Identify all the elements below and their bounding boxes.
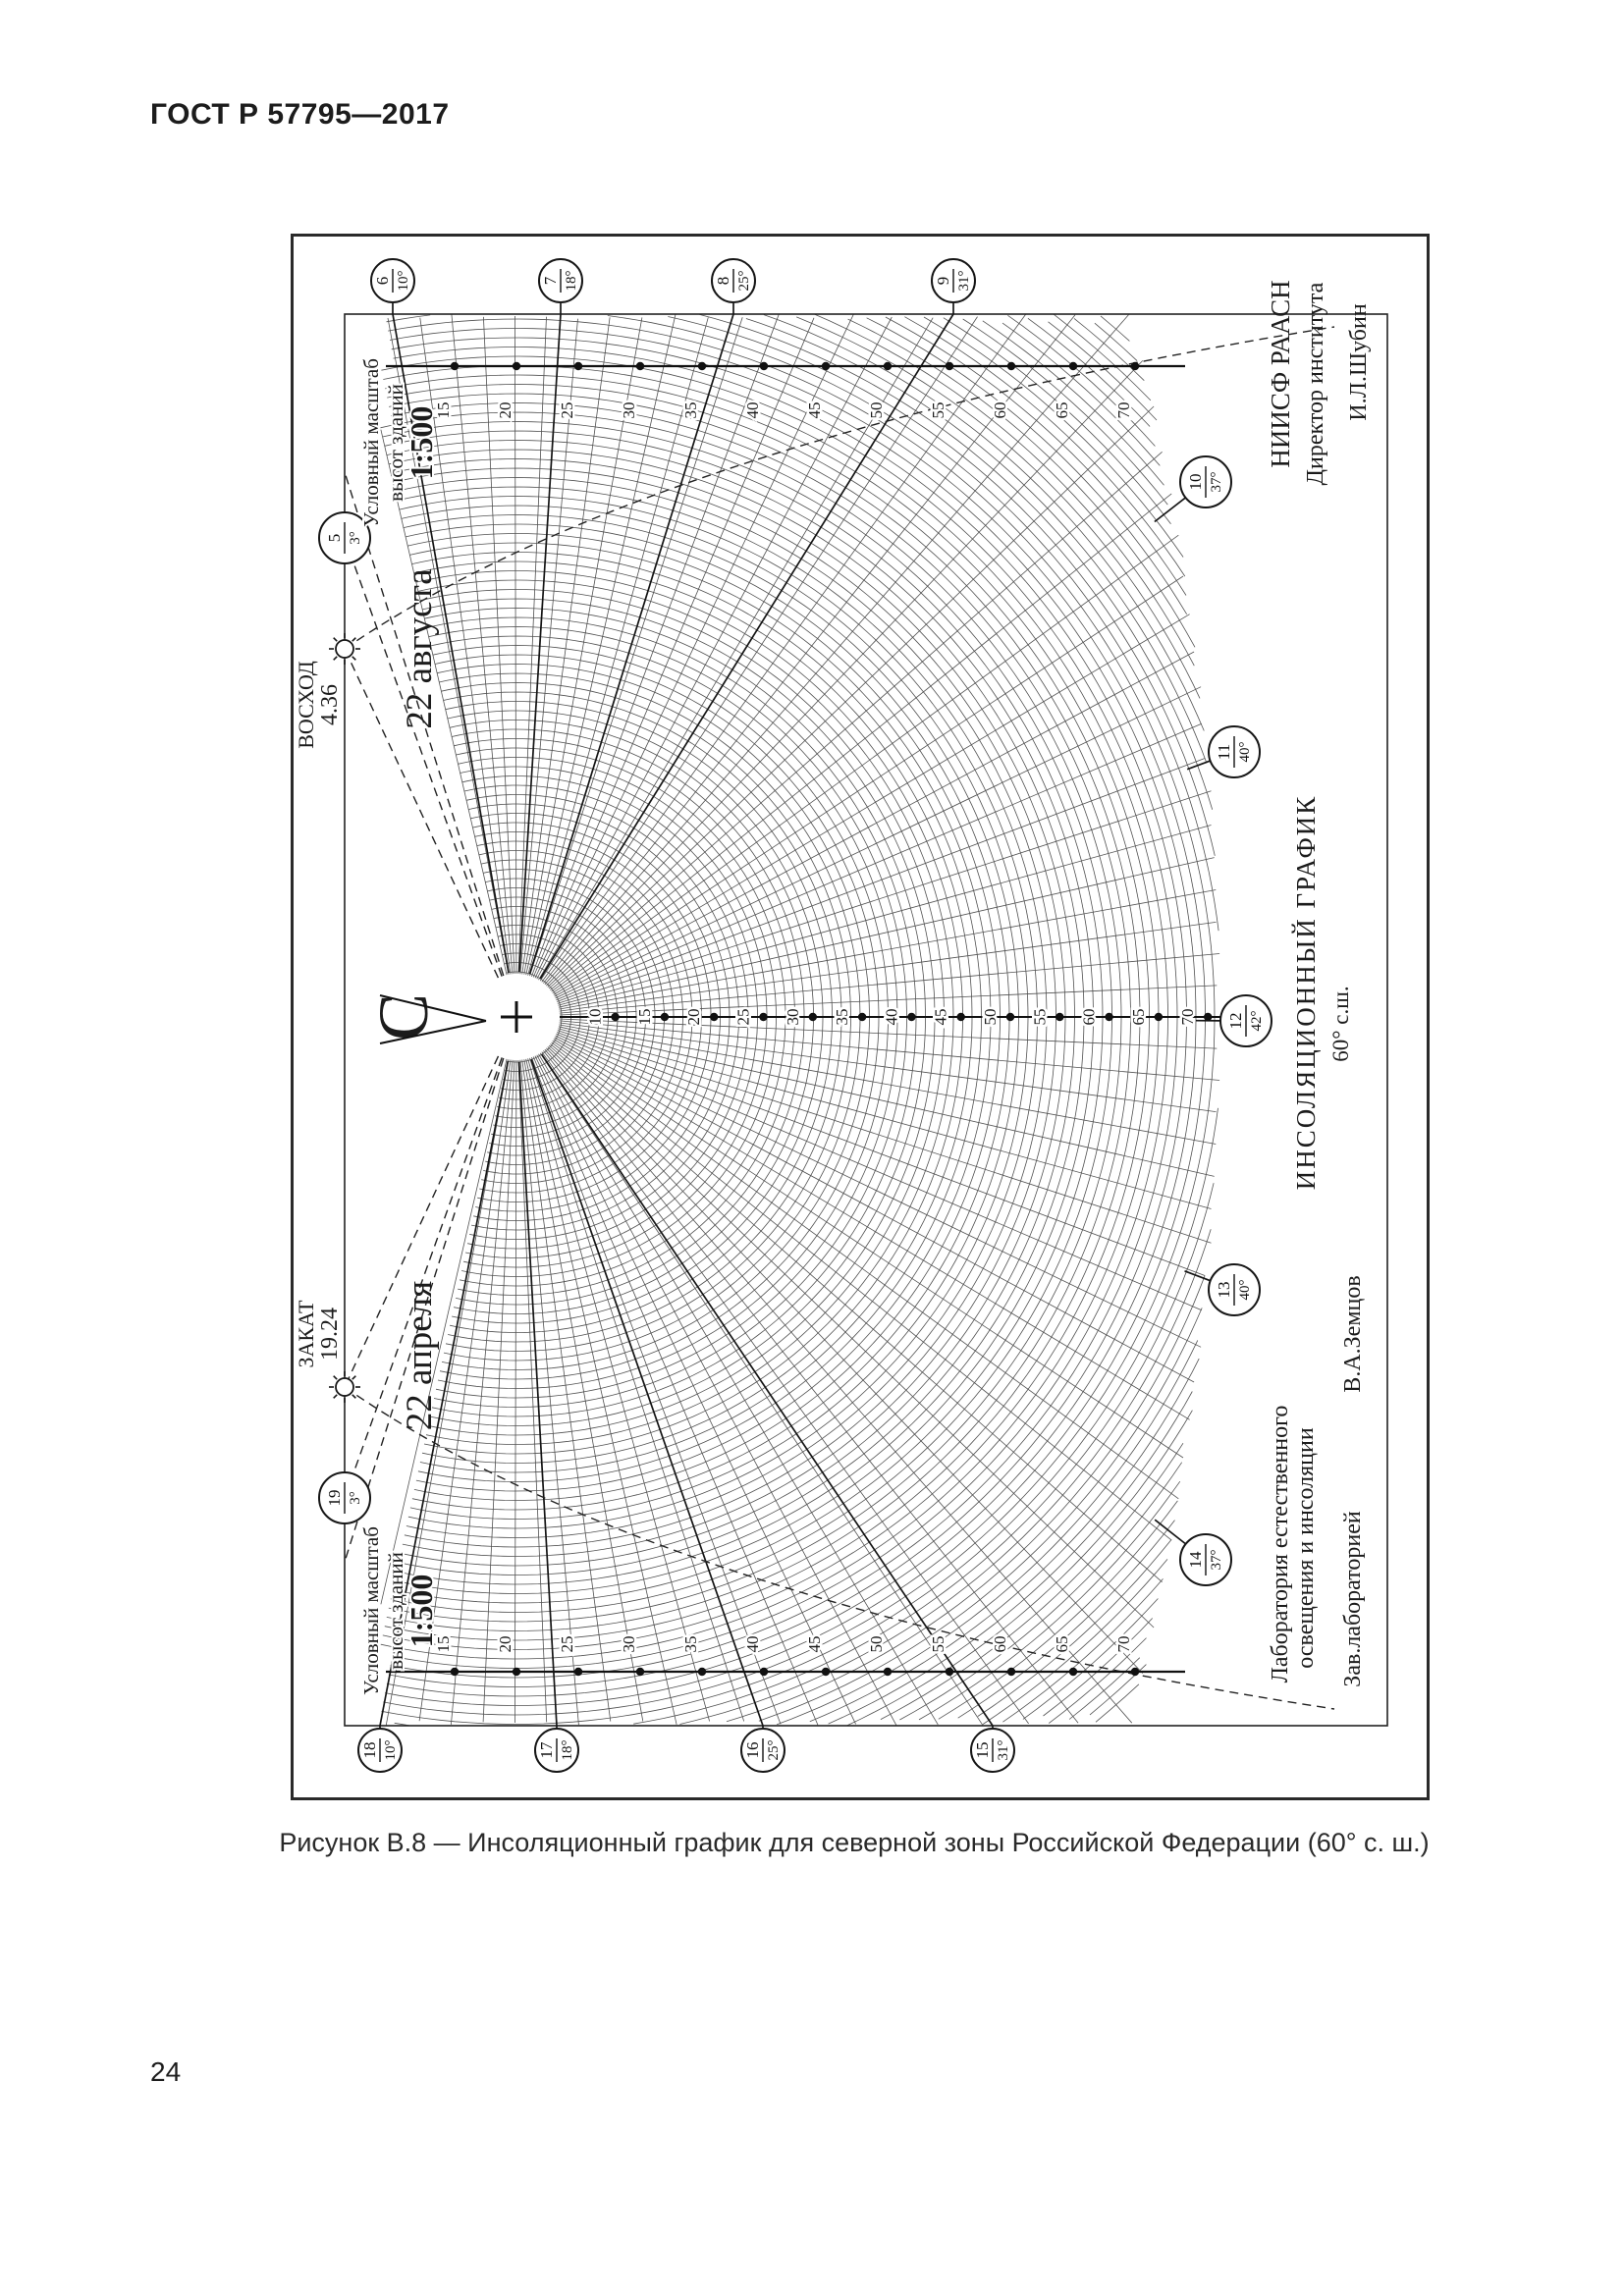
lab-head-name: В.А.Земцов — [1340, 1275, 1366, 1392]
north-symbol: С — [364, 993, 486, 1043]
svg-text:40: 40 — [743, 1636, 762, 1653]
chart-latitude: 60° с.ш. — [1328, 986, 1353, 1061]
sunset-time: 19.24 — [317, 1308, 343, 1361]
chart-title: ИНСОЛЯЦИОННЫЙ ГРАФИК — [1291, 795, 1321, 1191]
sunset-sun-icon — [329, 1371, 360, 1403]
scale-note-top-line3: 1:500 — [404, 406, 439, 480]
svg-text:45: 45 — [932, 1009, 950, 1026]
svg-text:65: 65 — [1129, 1009, 1148, 1026]
svg-text:6: 6 — [373, 277, 392, 286]
svg-text:50: 50 — [867, 402, 886, 419]
svg-text:25°: 25° — [736, 271, 752, 292]
svg-text:50: 50 — [981, 1009, 1000, 1026]
svg-text:30: 30 — [620, 1636, 638, 1653]
svg-text:40°: 40° — [1237, 742, 1253, 763]
svg-text:37°: 37° — [1209, 1550, 1224, 1571]
sunrise-label: ВОСХОД — [294, 661, 318, 749]
svg-text:37°: 37° — [1209, 472, 1224, 493]
lab-name-line1: Лаборатория естественного — [1268, 1406, 1293, 1683]
svg-text:30: 30 — [620, 402, 638, 419]
svg-text:13: 13 — [1215, 1282, 1233, 1299]
svg-text:11: 11 — [1215, 744, 1233, 760]
svg-text:20: 20 — [496, 1636, 514, 1653]
height-ruler-top: 152025303540455055606570 — [386, 362, 1185, 419]
svg-text:8: 8 — [714, 277, 732, 286]
svg-text:9: 9 — [934, 277, 952, 286]
svg-text:40: 40 — [882, 1009, 900, 1026]
svg-text:60: 60 — [991, 402, 1009, 419]
svg-text:31°: 31° — [956, 271, 972, 292]
scale-note-bottom-line3: 1:500 — [404, 1575, 439, 1648]
svg-text:10: 10 — [586, 1009, 605, 1026]
figure-caption: Рисунок В.8 — Инсоляционный график для с… — [245, 1828, 1463, 1858]
standard-number-header: ГОСТ Р 57795—2017 — [150, 98, 450, 132]
svg-text:14: 14 — [1186, 1551, 1205, 1569]
lab-name-line2: освещения и инсоляции — [1293, 1427, 1319, 1669]
svg-text:65: 65 — [1053, 402, 1071, 419]
svg-text:17: 17 — [537, 1741, 556, 1759]
svg-text:18: 18 — [360, 1742, 379, 1759]
svg-text:25: 25 — [558, 1636, 576, 1653]
svg-text:60: 60 — [991, 1636, 1009, 1653]
svg-text:40°: 40° — [1237, 1280, 1253, 1301]
svg-text:35: 35 — [681, 402, 700, 419]
lab-head-title: Зав.лабораторией — [1340, 1511, 1366, 1687]
svg-text:10°: 10° — [396, 271, 411, 292]
scale-note-bottom-line1: Условный масштаб — [359, 1526, 383, 1695]
svg-text:70: 70 — [1114, 402, 1133, 419]
date-label-april: 22 апреля — [400, 1281, 440, 1430]
svg-text:70: 70 — [1178, 1009, 1197, 1026]
svg-text:30: 30 — [784, 1009, 802, 1026]
svg-text:10: 10 — [1186, 474, 1205, 491]
sunrise-time: 4.36 — [317, 684, 343, 725]
page-number: 24 — [150, 2056, 181, 2088]
svg-text:3°: 3° — [348, 1491, 363, 1505]
svg-text:18°: 18° — [564, 271, 579, 292]
svg-text:25: 25 — [734, 1009, 753, 1026]
org-director-name: И.Л.Шубин — [1346, 303, 1372, 421]
svg-text:45: 45 — [805, 1636, 824, 1653]
svg-text:35: 35 — [833, 1009, 851, 1026]
svg-text:7: 7 — [541, 276, 560, 285]
svg-text:25°: 25° — [766, 1740, 782, 1761]
svg-text:20: 20 — [684, 1009, 703, 1026]
svg-text:15: 15 — [635, 1009, 654, 1026]
svg-text:42°: 42° — [1249, 1011, 1265, 1032]
svg-text:16: 16 — [743, 1742, 762, 1759]
svg-text:5: 5 — [325, 534, 344, 543]
svg-text:55: 55 — [929, 402, 947, 419]
svg-text:50: 50 — [867, 1636, 886, 1653]
svg-text:65: 65 — [1053, 1636, 1071, 1653]
svg-text:3°: 3° — [348, 531, 363, 545]
insolation-chart-svg: 1520253035404550556065701520253035404550… — [294, 237, 1427, 1797]
org-director-title: Директор института — [1303, 282, 1328, 485]
svg-text:12: 12 — [1226, 1013, 1245, 1030]
svg-text:55: 55 — [929, 1636, 947, 1653]
svg-text:40: 40 — [743, 402, 762, 419]
sunset-label: ЗАКАТ — [294, 1300, 318, 1368]
svg-text:10°: 10° — [383, 1740, 399, 1761]
svg-text:31°: 31° — [996, 1740, 1011, 1761]
svg-text:25: 25 — [558, 402, 576, 419]
sunrise-sun-icon — [329, 633, 360, 665]
height-ruler-bottom: 152025303540455055606570 — [386, 1636, 1185, 1677]
svg-text:18°: 18° — [560, 1740, 575, 1761]
date-label-august: 22 августа — [400, 568, 440, 728]
svg-text:55: 55 — [1030, 1009, 1049, 1026]
insolation-figure: 1520253035404550556065701520253035404550… — [291, 234, 1430, 1800]
svg-text:70: 70 — [1114, 1636, 1133, 1653]
svg-text:45: 45 — [805, 402, 824, 419]
scale-note-top-line1: Условный масштаб — [359, 358, 383, 527]
org-name: НИИСФ РААСН — [1266, 280, 1295, 467]
svg-text:60: 60 — [1080, 1009, 1099, 1026]
svg-text:15: 15 — [973, 1742, 992, 1759]
document-page: ГОСТ Р 57795—2017 1520253035404550556065… — [0, 0, 1624, 2296]
svg-text:35: 35 — [681, 1636, 700, 1653]
svg-text:20: 20 — [496, 402, 514, 419]
svg-text:19: 19 — [325, 1490, 344, 1507]
